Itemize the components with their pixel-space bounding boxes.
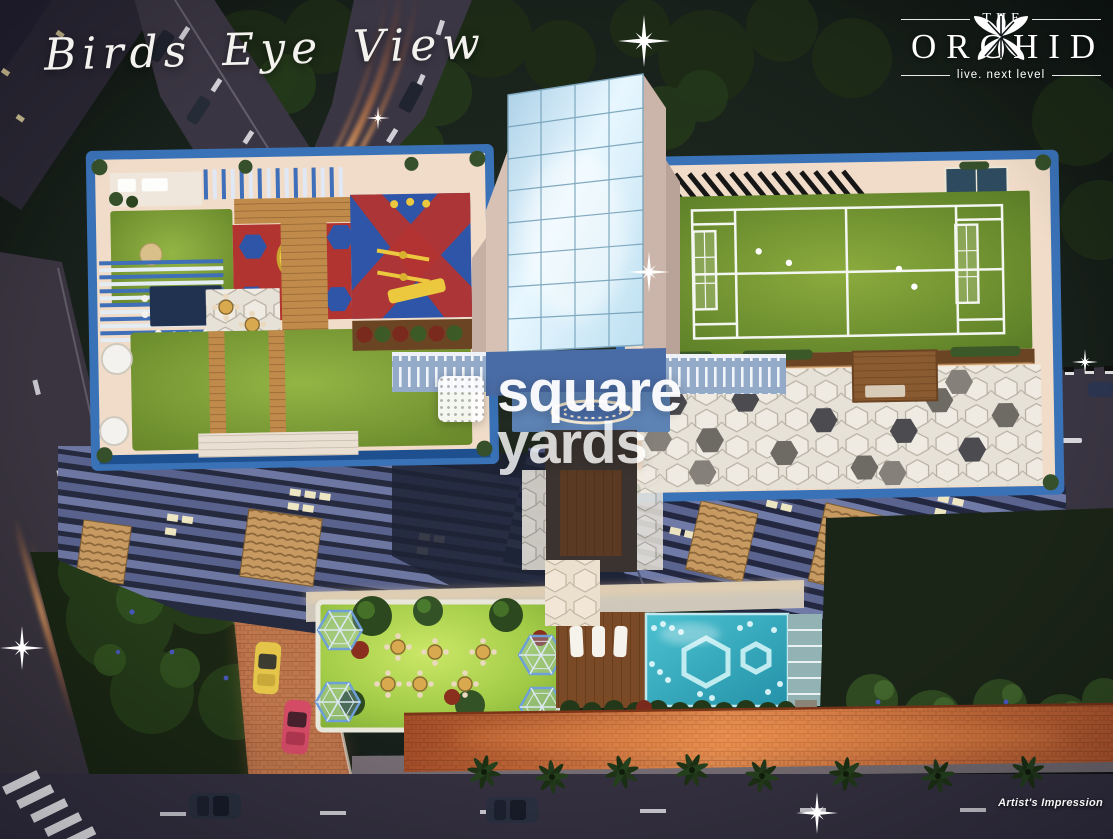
vignette — [0, 0, 1113, 839]
brand-tagline: live. next level — [957, 70, 1045, 82]
artists-impression-note: Artist's Impression — [998, 798, 1103, 809]
screenshot-root: Birds Eye View THE ORCHID live. next lev… — [0, 0, 1113, 839]
rule-line — [901, 19, 970, 20]
brand-tagline-row: live. next level — [901, 70, 1101, 82]
brand-logo: THE ORCHID live. next level — [901, 12, 1101, 81]
aerial-render-scene — [0, 0, 1113, 839]
orchid-flower-icon — [958, 12, 1044, 64]
rule-line — [1052, 75, 1101, 76]
rule-line — [901, 75, 950, 76]
birds-eye-view-title: Birds Eye View — [43, 22, 486, 78]
rule-line — [1032, 19, 1101, 20]
